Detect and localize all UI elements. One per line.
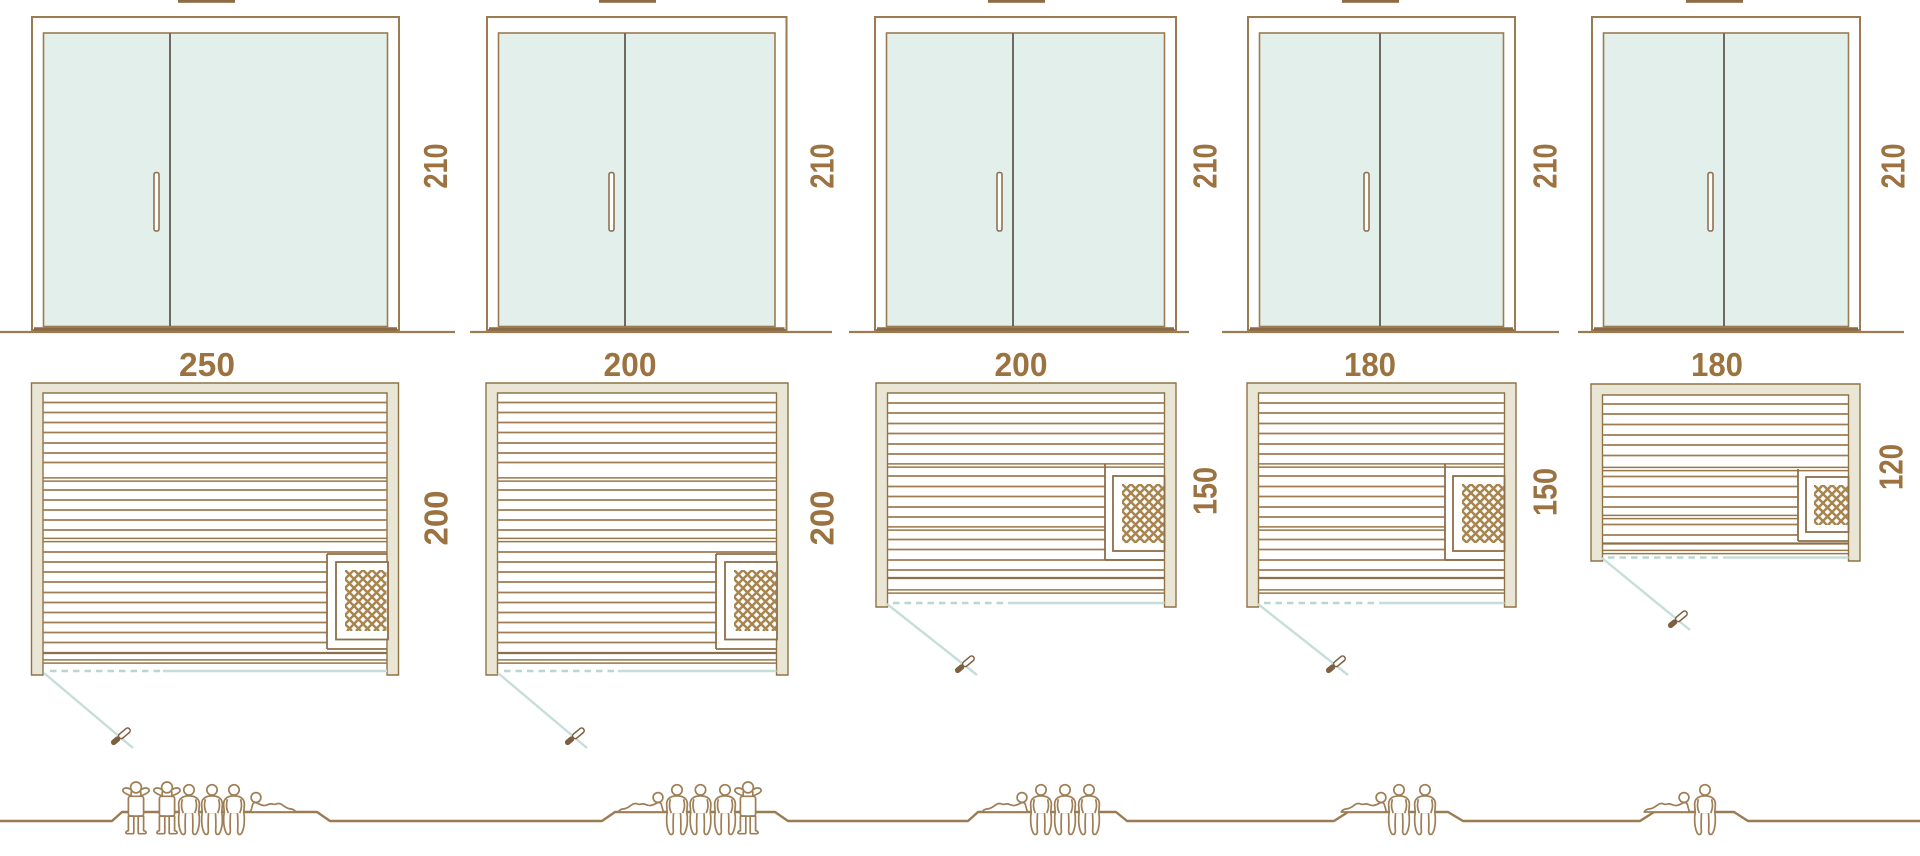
svg-text:120: 120 bbox=[1873, 444, 1910, 490]
svg-text:210: 210 bbox=[417, 144, 454, 189]
svg-text:200: 200 bbox=[995, 346, 1048, 383]
svg-text:200: 200 bbox=[418, 491, 455, 546]
svg-text:210: 210 bbox=[1875, 144, 1912, 189]
svg-text:180: 180 bbox=[1691, 346, 1743, 383]
svg-text:210: 210 bbox=[804, 144, 841, 189]
svg-text:210: 210 bbox=[1187, 144, 1224, 189]
svg-text:200: 200 bbox=[804, 491, 841, 546]
svg-text:200: 200 bbox=[604, 346, 657, 383]
svg-text:210: 210 bbox=[1527, 144, 1564, 189]
svg-text:150: 150 bbox=[1527, 468, 1564, 516]
svg-text:150: 150 bbox=[1187, 467, 1224, 515]
svg-text:250: 250 bbox=[179, 346, 235, 383]
svg-text:180: 180 bbox=[1344, 346, 1396, 383]
